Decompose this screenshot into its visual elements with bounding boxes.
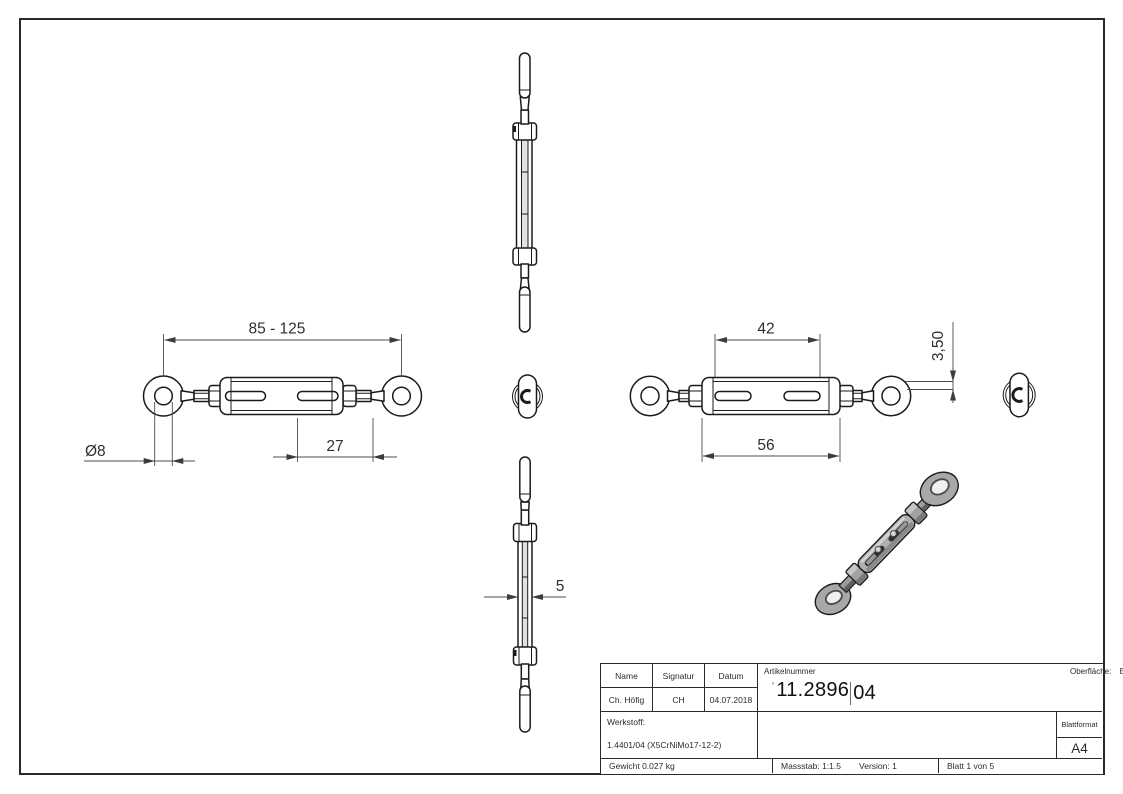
title-block-header-datum: Datum (705, 664, 758, 688)
dim-eye-hole-label: Ø8 (85, 443, 106, 460)
title-block-header-name: Name (601, 664, 653, 688)
artikelnummer-prefix: ’ (772, 681, 774, 691)
artikelnummer-suffix: 04 (850, 682, 876, 705)
massstab: Massstab: 1:1.5 (781, 761, 841, 771)
side-view-top (513, 53, 537, 332)
dimension-56: 56 (702, 418, 840, 462)
dim-eye-thickness-label: 3,50 (930, 331, 947, 362)
oberflaeche: Oberfläche: Elektropoliert (1070, 667, 1123, 676)
title-block-werkstoff-cell: Werkstoff: 1.4401/04 (X5CrNiMo17-12-2) (601, 712, 758, 759)
title-block-name-value: Ch. Höfig (601, 688, 653, 712)
artikelnummer-value: ’11.289604 (772, 679, 876, 702)
artikelnummer-main: 11.2896 (776, 679, 849, 701)
title-block-artikelnummer-cell: Artikelnummer Oberfläche: Elektropoliert… (758, 664, 1102, 712)
werkstoff-label: Werkstoff: (607, 717, 645, 727)
drawing-sheet: 85 - 125 Ø8 27 (0, 0, 1123, 794)
dim-42-label: 42 (757, 321, 774, 338)
blattformat-label: Blattformat (1057, 712, 1102, 738)
dim-overall-length-label: 85 - 125 (249, 321, 306, 338)
blatt: Blatt 1 von 5 (939, 759, 1102, 773)
dimension-overall-length: 85 - 125 (164, 321, 402, 378)
version: Version: 1 (859, 761, 897, 771)
oberflaeche-value: Elektropoliert (1120, 667, 1123, 676)
dimension-eye-thickness: 3,50 (905, 322, 953, 403)
dimension-eye-hole-diameter: Ø8 (84, 402, 195, 466)
front-view-left: 85 - 125 Ø8 27 (84, 321, 422, 467)
dimension-42: 42 (715, 321, 820, 378)
blattformat-value: A4 (1057, 738, 1102, 759)
side-view-bottom: 5 (484, 457, 566, 732)
title-block: Name Signatur Datum Ch. Höfig CH 04.07.2… (600, 663, 1104, 775)
gewicht: Gewicht 0.027 kg (601, 759, 773, 773)
dim-56-label: 56 (757, 437, 774, 454)
title-block-datum-value: 04.07.2018 (705, 688, 758, 712)
oberflaeche-label: Oberfläche: (1070, 667, 1111, 676)
werkstoff-value: 1.4401/04 (X5CrNiMo17-12-2) (607, 740, 721, 750)
dim-5-label: 5 (556, 578, 565, 595)
front-view-right: 42 56 3,50 (630, 321, 953, 463)
massstab-version: Massstab: 1:1.5 Version: 1 (773, 759, 939, 773)
dim-27-label: 27 (326, 438, 343, 455)
dimension-27: 27 (273, 418, 397, 462)
end-view-center (513, 375, 543, 418)
title-block-signatur-value: CH (653, 688, 705, 712)
isometric-view (803, 458, 970, 629)
title-block-header-signatur: Signatur (653, 664, 705, 688)
title-block-empty-cell (758, 712, 1057, 759)
artikelnummer-label: Artikelnummer (764, 667, 816, 676)
end-view-right (1003, 373, 1035, 416)
